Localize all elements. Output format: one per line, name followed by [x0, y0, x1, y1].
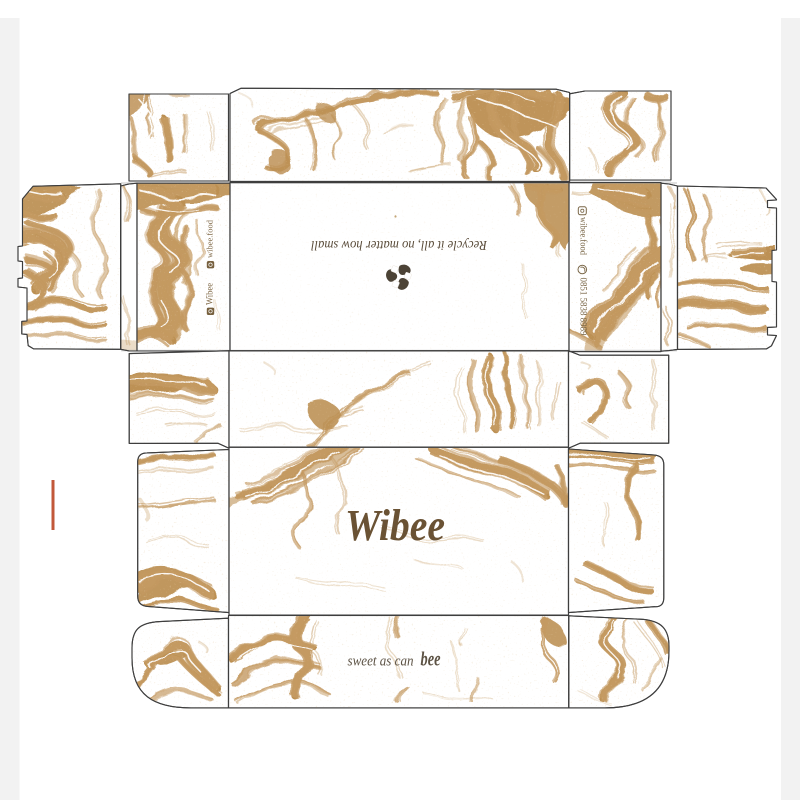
svg-text:Wibee: Wibee: [206, 283, 216, 305]
svg-text:wibee.food: wibee.food: [578, 217, 588, 255]
svg-text:Wibee: Wibee: [345, 501, 445, 550]
svg-text:sweet as can: sweet as can: [348, 654, 414, 670]
svg-text:wibee.food: wibee.food: [204, 219, 214, 258]
svg-text:0851 5838 8989: 0851 5838 8989: [578, 278, 588, 336]
svg-text:bee: bee: [421, 649, 441, 671]
svg-text:Recycle it all, no matter how: Recycle it all, no matter how small: [311, 238, 488, 253]
